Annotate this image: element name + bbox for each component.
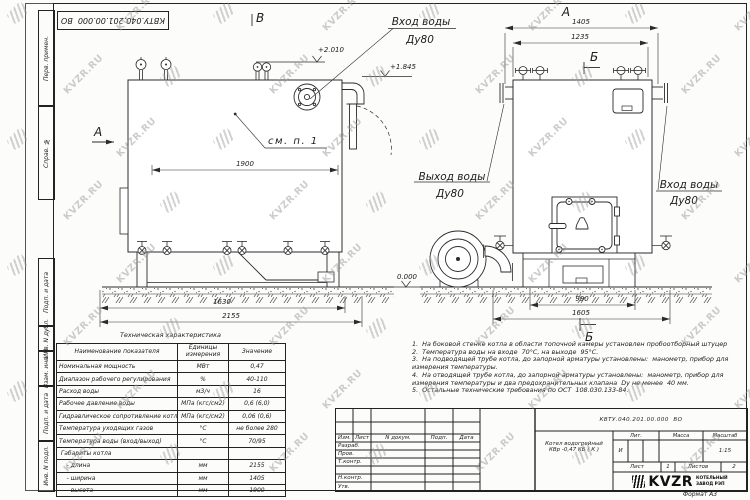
tech-characteristics-table: Наименование показателя Единицы измерени…	[56, 343, 286, 497]
sheets-label: Листов	[675, 462, 721, 472]
margin-box-sprav: Справ. №	[38, 105, 55, 200]
row-utv: Утв.	[336, 482, 373, 491]
title-block: Изм. Лист N докум. Подп. Дата Разраб. Пр…	[335, 408, 748, 492]
param-name: Температура воды (вход/выход)	[57, 435, 178, 447]
row-tkontr: Т.контр.	[336, 458, 373, 466]
scale-value: 1:15	[703, 440, 747, 462]
param-units: мм	[178, 460, 229, 472]
product-title: Котел водогрейный КВр -0,47 КБ ( К )	[535, 433, 613, 461]
margin-box-inv-dubl: Инв. N дубл.	[38, 325, 55, 352]
table-row: Номинальная мощностьМВт0,47	[57, 361, 286, 373]
col-list: Лист	[353, 434, 371, 442]
param-name: Рабочее давление воды	[57, 398, 178, 410]
row-prov: Пров.	[336, 450, 373, 458]
product-title-line2: КВр -0,47 КБ ( К )	[549, 447, 599, 453]
table-row: - высотамм1900	[57, 484, 286, 496]
table-row: Гидравлическое сопротивление котлаМПа (к…	[57, 410, 286, 422]
lit-header: Лит.	[613, 431, 659, 440]
table-header-row: Наименование показателя Единицы измерени…	[57, 344, 286, 361]
margin-box-vzam-inv: Взам. инв. N	[38, 350, 55, 387]
param-value: 0,6 (6,0)	[229, 398, 286, 410]
note-line: 5. Остальные технические требования по О…	[412, 387, 732, 395]
param-name: - ширина	[57, 472, 178, 484]
col-header-units: Единицы измерения	[178, 344, 229, 361]
rotated-doc-number-stamp: КВТУ.040.201.00.000 ВО	[57, 11, 169, 30]
col-data: Дата	[453, 434, 480, 442]
param-name: Гидравлическое сопротивление котла	[57, 410, 178, 422]
table-row: Рабочее давление водыМПа (кгс/см2)0,6 (6…	[57, 398, 286, 410]
param-value: 0,47	[229, 361, 286, 373]
margin-box-perv-primen: Перв. примен.	[38, 10, 55, 107]
margin-label: Справ. №	[43, 138, 50, 168]
brand-name: KVZR	[648, 474, 693, 490]
table-row: Температура воды (вход/выход)°С70/95	[57, 435, 286, 447]
table-row: Диапазон рабочего регулирования%40-110	[57, 373, 286, 385]
sheet-value: 1	[661, 462, 675, 472]
col-header-name: Наименование показателя	[57, 344, 178, 361]
lit-value: И	[613, 440, 628, 462]
param-value: 16	[229, 385, 286, 397]
scale-header: Масштаб	[703, 431, 747, 440]
param-units: °С	[178, 435, 229, 447]
margin-box-inv-podl: Инв. N подл.	[38, 440, 55, 492]
table-row: Габариты котла	[57, 447, 286, 459]
param-name: Температура уходящих газов	[57, 422, 178, 434]
param-name: Габариты котла	[57, 447, 178, 459]
param-units: МПа (кгс/см2)	[178, 398, 229, 410]
mass-header: Масса	[659, 431, 703, 440]
margin-label: Подп. и дата	[43, 272, 50, 313]
param-value: 40-110	[229, 373, 286, 385]
col-ndoc: N докум.	[371, 434, 425, 442]
doc-number-rotated: КВТУ.040.201.00.000 ВО	[61, 16, 165, 25]
param-units: °С	[178, 422, 229, 434]
table-row: - ширинамм1405	[57, 472, 286, 484]
param-name: Диапазон рабочего регулирования	[57, 373, 178, 385]
margin-label: Перв. примен.	[43, 36, 50, 81]
technical-notes: 1. На боковой стенке котла в области топ…	[412, 341, 732, 395]
param-value: 70/95	[229, 435, 286, 447]
param-value: 0,06 (0,6)	[229, 410, 286, 422]
param-value: не более 280	[229, 422, 286, 434]
param-units: %	[178, 373, 229, 385]
param-value: 1900	[229, 484, 286, 496]
param-name: - длина	[57, 460, 178, 472]
param-units: мм	[178, 484, 229, 496]
row-nkontr: Н.контр.	[336, 474, 373, 482]
param-units	[178, 447, 229, 459]
brand-sub2: ЗАВОД РЭП	[696, 482, 728, 487]
doc-number: КВТУ.040.201.00.000 ВО	[535, 409, 747, 431]
param-value: 1405	[229, 472, 286, 484]
col-header-value: Значение	[229, 344, 286, 361]
sheets-value: 2	[721, 462, 747, 472]
margin-box-podp-data-1: Подп. и дата	[38, 258, 55, 327]
margin-label: Взам. инв. N	[43, 349, 50, 388]
tech-table-title: Техническая характеристика	[56, 331, 285, 339]
col-podp: Подп.	[425, 434, 453, 442]
row-razrab: Разраб.	[336, 442, 373, 450]
param-units: МВт	[178, 361, 229, 373]
param-value	[229, 447, 286, 459]
param-name: - высота	[57, 484, 178, 496]
kvzr-coil-icon	[632, 475, 645, 488]
table-row: Расход водым3/ч16	[57, 385, 286, 397]
param-units: м3/ч	[178, 385, 229, 397]
table-row: - длинамм2155	[57, 460, 286, 472]
margin-label: Подп. и дата	[43, 393, 50, 434]
table-row: Температура уходящих газов°Сне более 280	[57, 422, 286, 434]
param-value: 2155	[229, 460, 286, 472]
margin-label: Инв. N подл.	[43, 446, 50, 486]
param-name: Номинальная мощность	[57, 361, 178, 373]
param-units: мм	[178, 472, 229, 484]
company-logo: KVZR КОТЕЛЬНЫЙ ЗАВОД РЭП	[613, 472, 747, 491]
param-name: Расход воды	[57, 385, 178, 397]
col-izm: Изм.	[336, 434, 353, 442]
format-label: Формат А3	[660, 491, 740, 498]
margin-box-podp-data-2: Подп. и дата	[38, 385, 55, 442]
param-units: МПа (кгс/см2)	[178, 410, 229, 422]
sheet-label: Лист	[613, 462, 661, 472]
